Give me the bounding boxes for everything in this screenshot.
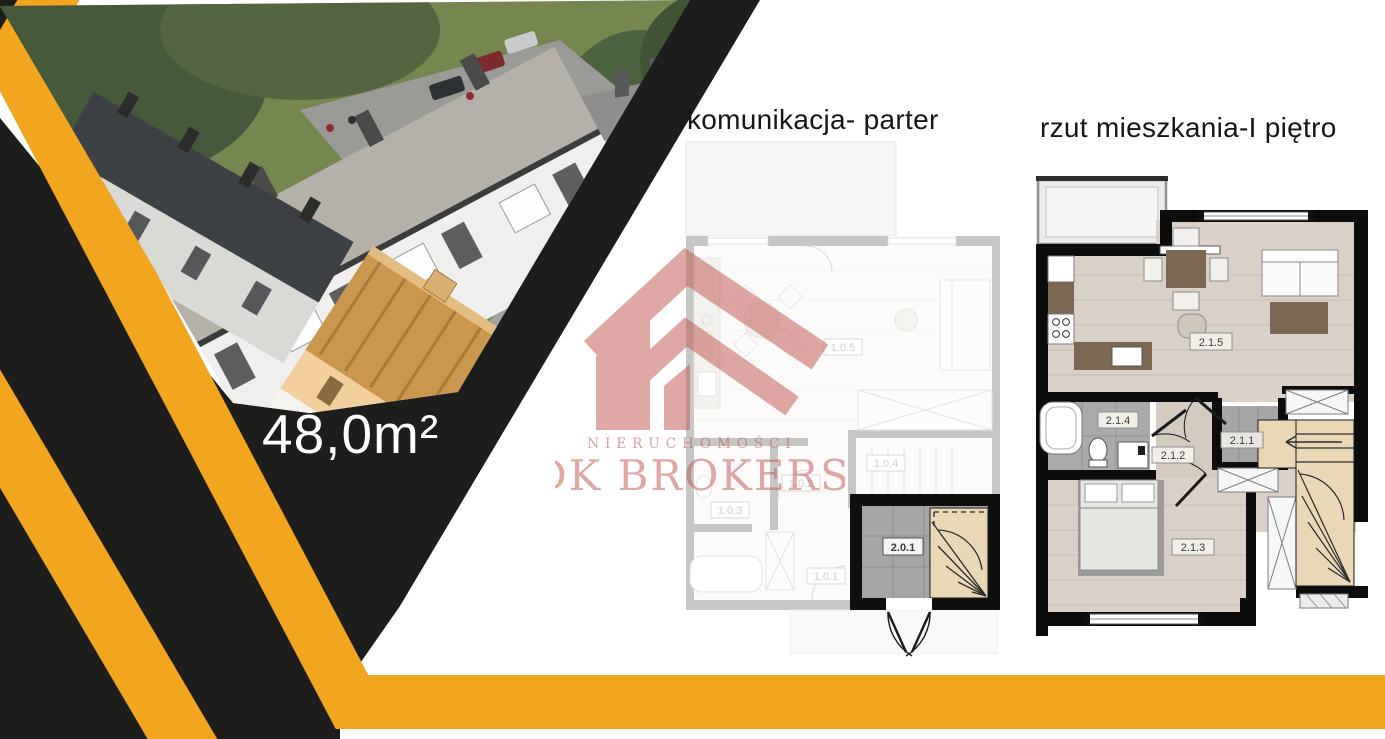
balcony	[1036, 176, 1168, 244]
room-label: 1.0.1	[814, 571, 838, 583]
area-badge: 48,0m²	[262, 402, 439, 466]
watermark-house-logo	[594, 267, 820, 430]
first-floor-plan: 2.1.5 2.1.4 2.1.2 2.1.1 2.1.3	[1030, 170, 1375, 665]
living-furniture	[1262, 250, 1338, 334]
room-label: 2.1.1	[1230, 435, 1254, 447]
bed	[1078, 480, 1164, 576]
room-label: 2.1.5	[1199, 337, 1223, 349]
real-estate-flyer: 48,0m² komunikacja- parter rzut mieszkan…	[0, 0, 1385, 739]
room-label: 2.1.4	[1106, 415, 1130, 427]
room-label: 1.0.4	[874, 458, 898, 470]
watermark-subtitle: NIERUCHOMOŚCI	[587, 435, 797, 452]
first-floor-plan-title: rzut mieszkania-I piętro	[1040, 112, 1337, 144]
room-label-highlight: 2.0.1	[891, 542, 915, 554]
room-label: 2.1.3	[1181, 542, 1205, 554]
dk-brokers-watermark: NIERUCHOMOŚCI DK BROKERS	[555, 248, 845, 508]
room-label: 2.1.2	[1161, 450, 1185, 462]
ground-plan-title: komunikacja- parter	[687, 104, 939, 136]
watermark-brand-name: DK BROKERS	[555, 451, 845, 500]
